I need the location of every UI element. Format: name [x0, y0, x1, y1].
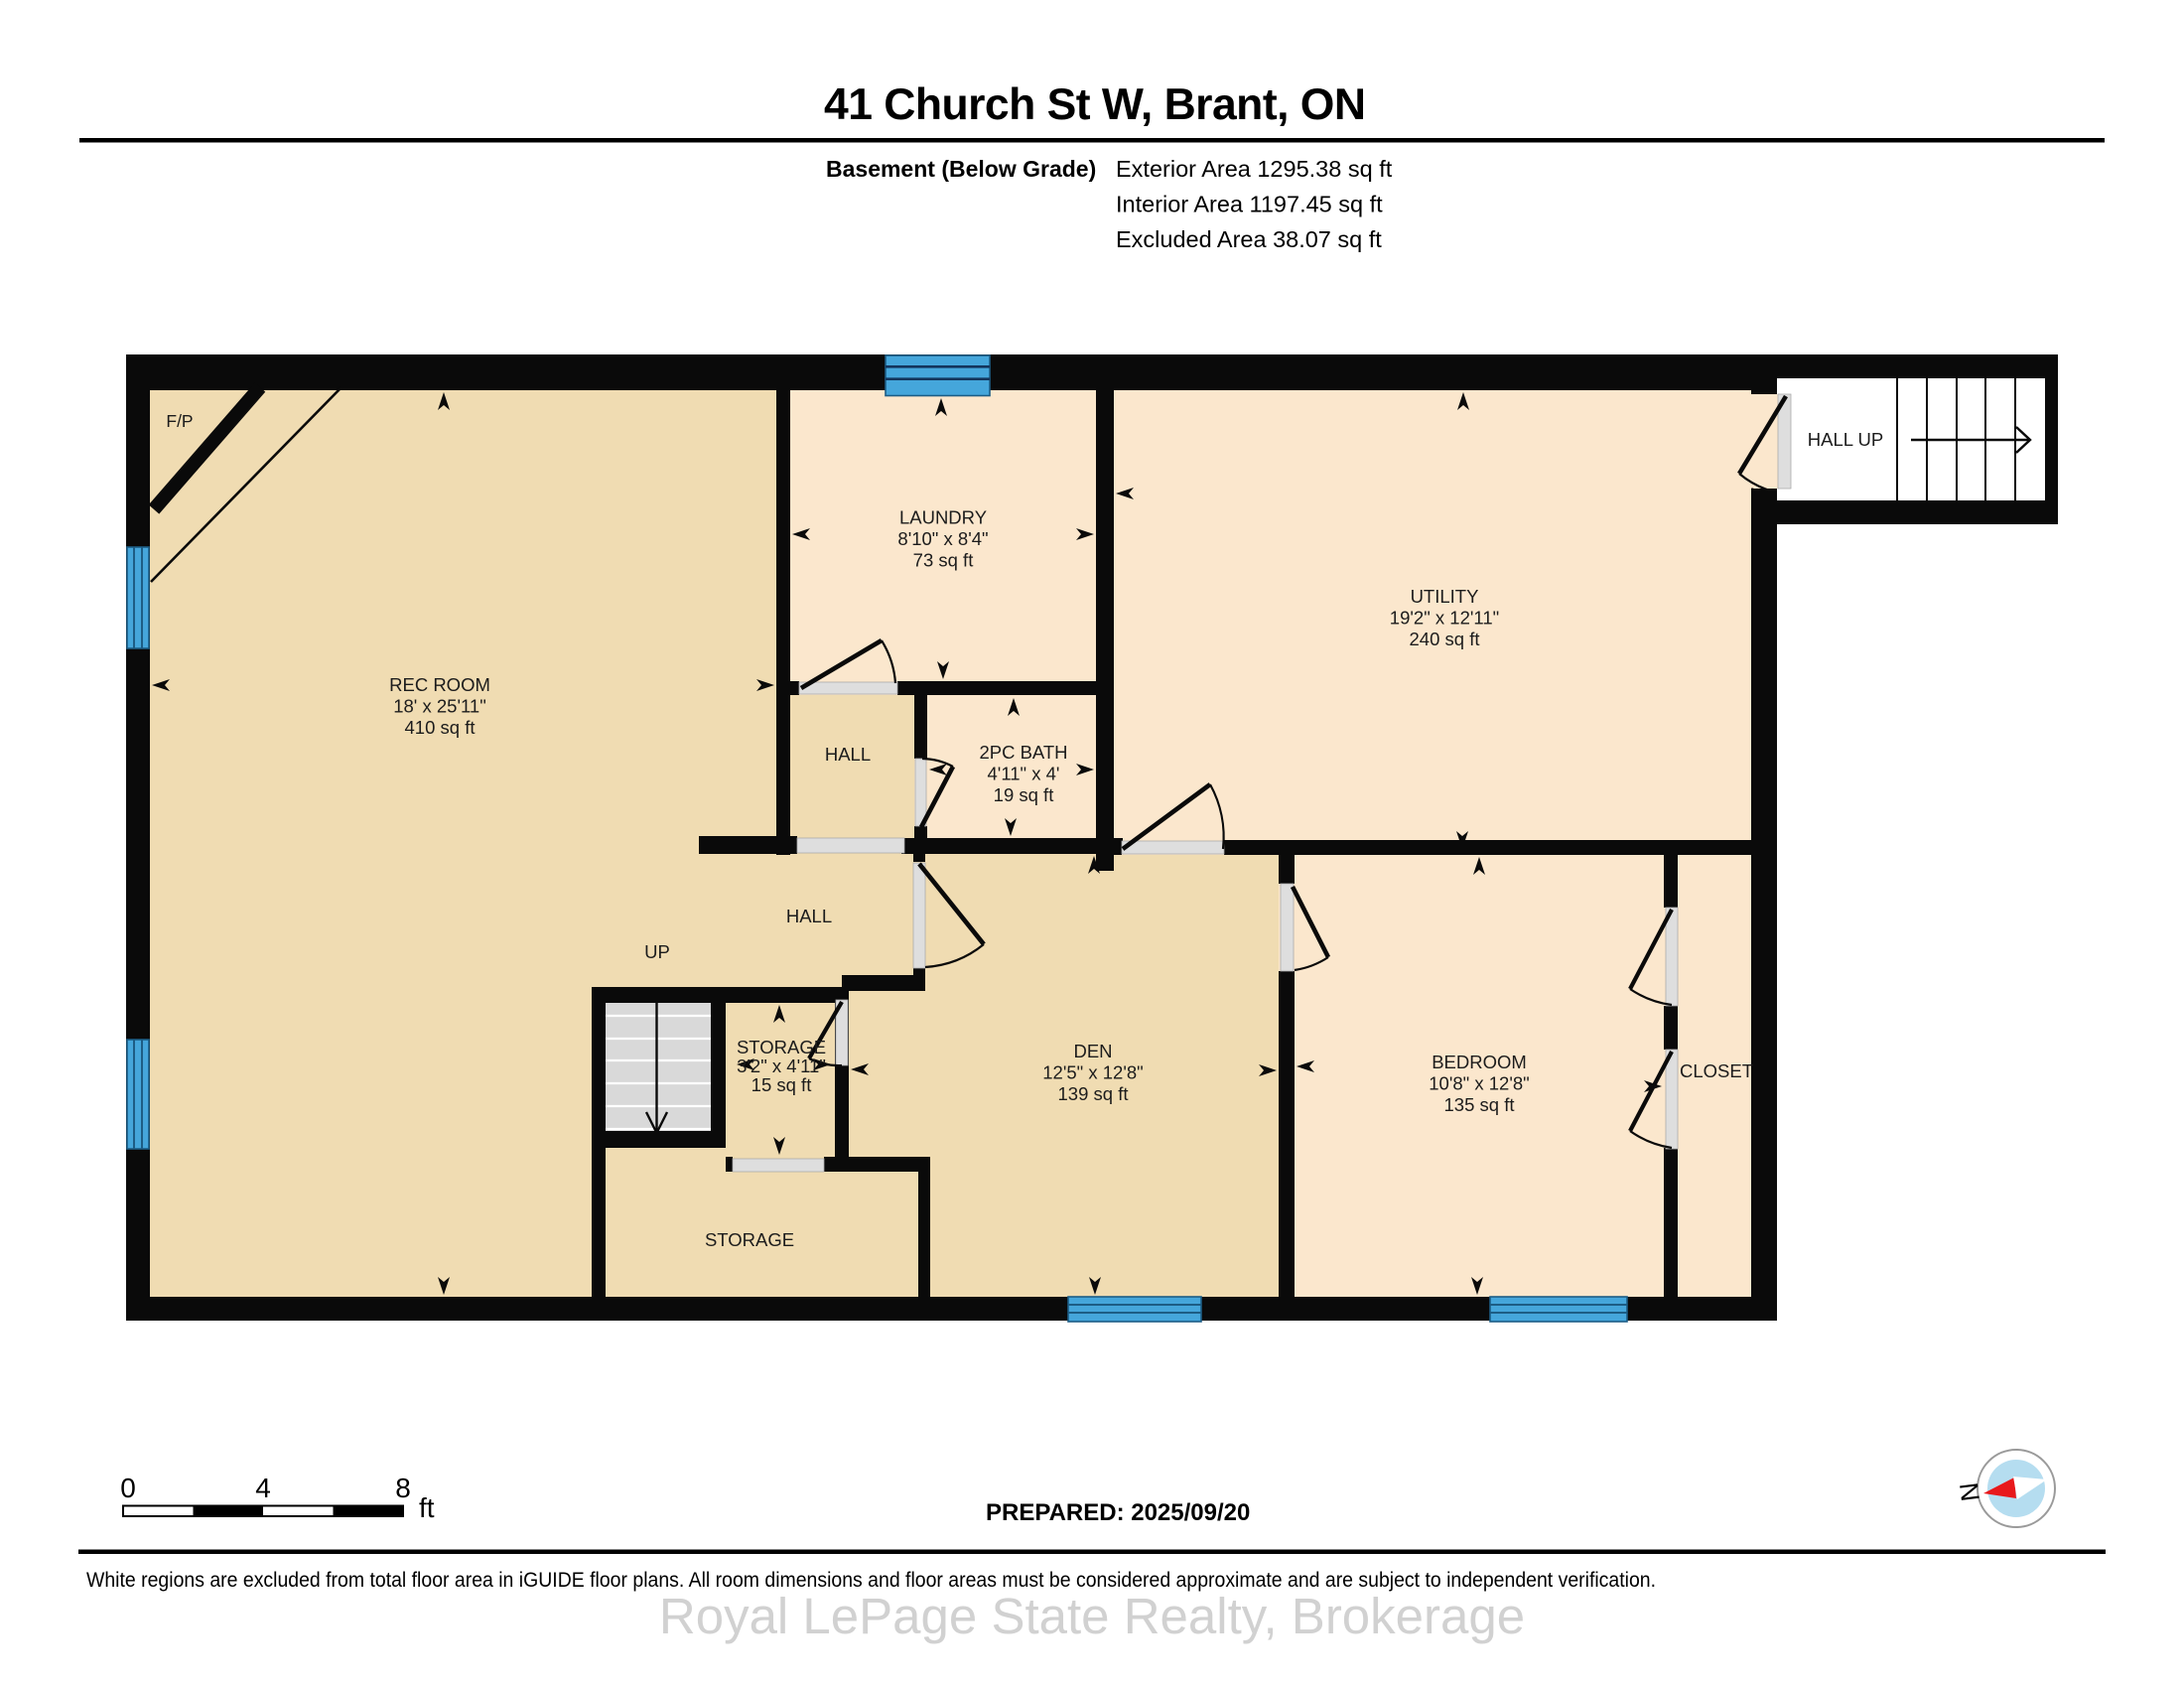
- svg-text:UP: UP: [644, 941, 670, 962]
- svg-text:Excluded Area 38.07 sq ft: Excluded Area 38.07 sq ft: [1116, 226, 1382, 252]
- svg-text:15 sq ft: 15 sq ft: [751, 1074, 812, 1095]
- svg-text:Royal LePage State Realty, Bro: Royal LePage State Realty, Brokerage: [659, 1588, 1525, 1644]
- svg-text:2PC BATH: 2PC BATH: [979, 742, 1067, 763]
- svg-text:41 Church St W, Brant, ON: 41 Church St W, Brant, ON: [824, 80, 1366, 129]
- svg-text:DEN: DEN: [1073, 1041, 1112, 1061]
- svg-text:HALL: HALL: [825, 744, 871, 765]
- svg-text:8: 8: [395, 1473, 411, 1503]
- svg-text:HALL: HALL: [786, 906, 832, 926]
- svg-text:LAUNDRY: LAUNDRY: [899, 507, 987, 528]
- svg-text:240 sq ft: 240 sq ft: [1410, 629, 1480, 649]
- svg-text:Basement (Below Grade): Basement (Below Grade): [826, 156, 1096, 182]
- svg-text:PREPARED: 2025/09/20: PREPARED: 2025/09/20: [986, 1499, 1250, 1526]
- svg-text:F/P: F/P: [166, 411, 193, 431]
- svg-text:ft: ft: [419, 1492, 435, 1523]
- svg-text:Interior Area 1197.45 sq ft: Interior Area 1197.45 sq ft: [1116, 192, 1383, 217]
- svg-text:CLOSET: CLOSET: [1680, 1060, 1753, 1081]
- svg-text:4'11" x 4': 4'11" x 4': [988, 764, 1060, 784]
- svg-text:19'2" x 12'11": 19'2" x 12'11": [1390, 608, 1499, 629]
- svg-text:0: 0: [120, 1473, 136, 1503]
- svg-text:10'8" x 12'8": 10'8" x 12'8": [1429, 1073, 1529, 1094]
- svg-text:8'10" x 8'4": 8'10" x 8'4": [897, 528, 988, 549]
- svg-text:12'5" x 12'8": 12'5" x 12'8": [1042, 1062, 1143, 1083]
- svg-text:135 sq ft: 135 sq ft: [1444, 1094, 1515, 1115]
- svg-text:HALL UP: HALL UP: [1808, 429, 1883, 450]
- svg-text:410 sq ft: 410 sq ft: [405, 717, 476, 738]
- svg-text:REC ROOM: REC ROOM: [389, 674, 490, 695]
- svg-text:Exterior Area 1295.38 sq ft: Exterior Area 1295.38 sq ft: [1116, 156, 1393, 182]
- svg-text:18' x 25'11": 18' x 25'11": [393, 696, 486, 717]
- svg-text:3'2" x 4'11": 3'2" x 4'11": [737, 1055, 826, 1076]
- svg-text:BEDROOM: BEDROOM: [1432, 1052, 1527, 1072]
- svg-text:STORAGE: STORAGE: [705, 1229, 794, 1250]
- svg-text:N: N: [1954, 1480, 1985, 1502]
- svg-text:139 sq ft: 139 sq ft: [1058, 1083, 1129, 1104]
- svg-text:19 sq ft: 19 sq ft: [994, 784, 1054, 805]
- svg-text:4: 4: [255, 1473, 271, 1503]
- svg-text:UTILITY: UTILITY: [1411, 586, 1479, 607]
- svg-text:73 sq ft: 73 sq ft: [913, 550, 974, 571]
- svg-text:STORAGE: STORAGE: [737, 1037, 826, 1057]
